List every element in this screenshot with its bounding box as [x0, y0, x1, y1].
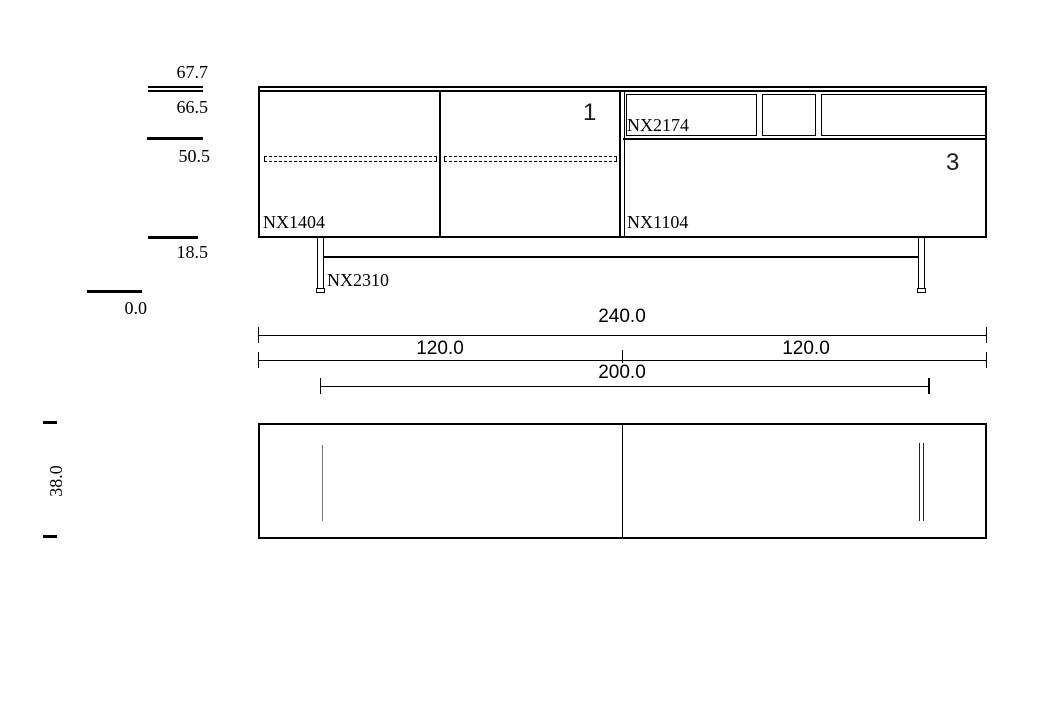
- dim-overall-tick-right: [986, 327, 988, 343]
- height-mark-18-5: 18.5: [140, 243, 208, 261]
- dim-base-span-tick-right: [928, 378, 930, 394]
- dashed-shelf-left: [264, 156, 437, 162]
- height-mark-67-7: 67.7: [140, 63, 208, 81]
- part-label-nx1404: NX1404: [263, 213, 325, 231]
- shelf-compartment-2: [762, 94, 816, 136]
- part-label-nx2310: NX2310: [327, 271, 389, 289]
- dim-right-half-label: 120.0: [756, 339, 856, 358]
- base-rail-line: [324, 256, 919, 258]
- position-number-3: 3: [946, 151, 959, 175]
- height-tick-18-5: [148, 236, 198, 239]
- shelf-compartment-3: [821, 94, 986, 136]
- plan-center-divider-line: [622, 425, 624, 537]
- dim-overall-line: [258, 335, 987, 337]
- dim-halves-tick-middle: [622, 350, 624, 363]
- height-tick-66-5: [148, 90, 203, 92]
- dim-halves-tick-left: [258, 352, 260, 368]
- cabinet-top-panel-inner-line: [260, 90, 985, 92]
- part-label-nx2174: NX2174: [627, 116, 689, 134]
- height-tick-50-5: [147, 137, 203, 140]
- right-section-separator-line: [623, 138, 987, 141]
- plan-right-leg-line-outer: [919, 443, 920, 521]
- dim-depth-tick-top: [43, 421, 57, 424]
- center-divider-line-left: [619, 91, 621, 237]
- dim-halves-tick-right: [986, 352, 988, 368]
- left-door-divider-line: [439, 91, 442, 236]
- height-tick-67-7: [148, 86, 203, 88]
- dim-depth-tick-bottom: [43, 535, 57, 538]
- dim-base-span-label: 200.0: [572, 363, 672, 382]
- part-label-nx1104: NX1104: [627, 213, 688, 231]
- plan-left-leg-line: [322, 445, 323, 521]
- technical-drawing-canvas: 67.7 66.5 50.5 18.5 0.0 NX1404 1 NX2174 …: [0, 0, 1063, 703]
- height-mark-0-0: 0.0: [95, 299, 147, 317]
- dim-depth-label: 38.0: [47, 465, 65, 497]
- dim-overall-label: 240.0: [572, 307, 672, 326]
- dim-base-span-line: [320, 386, 929, 388]
- height-tick-0-0: [87, 290, 142, 293]
- left-leg-foot: [316, 288, 325, 293]
- right-leg-foot: [917, 288, 926, 293]
- right-leg: [918, 237, 925, 288]
- dim-base-span-tick-left: [320, 378, 322, 394]
- dim-overall-tick-left: [258, 327, 260, 343]
- dashed-shelf-right: [444, 156, 617, 162]
- dim-left-half-label: 120.0: [390, 339, 490, 358]
- height-mark-66-5: 66.5: [140, 98, 208, 116]
- plan-right-leg-line-inner: [923, 443, 924, 521]
- height-mark-50-5: 50.5: [140, 147, 210, 165]
- position-number-1: 1: [583, 101, 596, 125]
- left-leg: [317, 238, 324, 288]
